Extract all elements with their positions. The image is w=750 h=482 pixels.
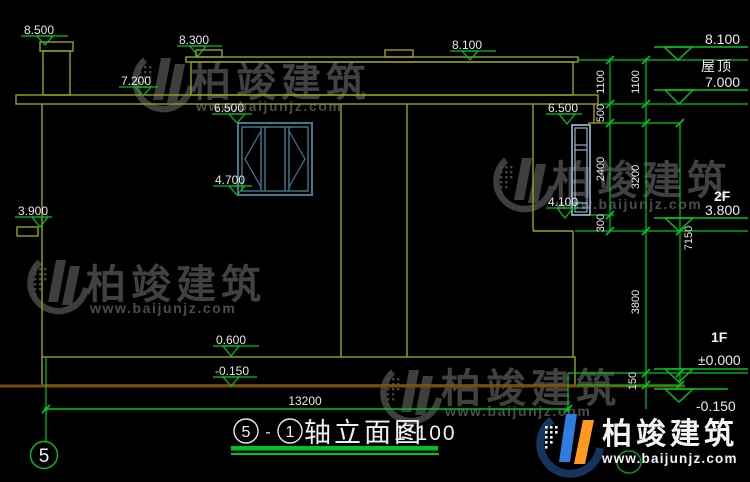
title-axis-end: 1 (286, 424, 295, 441)
right-dimension-system: 1100 500 2400 300 1100 3200 3800 150 715… (568, 31, 748, 414)
casement-swing-right-icon (289, 131, 305, 187)
title-separator: - (265, 424, 270, 441)
marker-neg0150-plinth: -0.150 (213, 364, 257, 386)
marker-4100-label: 4.100 (548, 195, 578, 209)
elevation-triangle-icon (665, 369, 693, 382)
logo-orange-tower-icon (574, 420, 594, 464)
marker-3900: 3.900 (15, 204, 52, 227)
drawing-canvas: 柏竣建筑 www.baijunjz.com 柏竣建筑 www.baijunjz.… (0, 0, 750, 482)
dim-7150: 7150 (683, 226, 695, 250)
dim-1100-b: 1100 (630, 70, 642, 94)
dim-3800: 3800 (630, 290, 642, 314)
watermark-right: 柏竣建筑 www.baijunjz.com (496, 158, 732, 212)
right-margin-markers: 8.100 屋顶 7.000 2F 3.800 1F ±0.000 -0.150 (654, 31, 748, 414)
roof-vent-center (385, 50, 413, 57)
brand-logo-icon (540, 414, 600, 474)
brand-logo: 柏竣建筑 www.baijunjz.com (540, 414, 738, 474)
right-marker-zero-label: ±0.000 (698, 352, 741, 368)
dim-2400: 2400 (595, 157, 607, 181)
elevation-triangle-icon (229, 114, 245, 123)
axis-bubble-label: 5 (39, 446, 50, 467)
brand-logo-url: www.baijunjz.com (601, 451, 738, 466)
right-marker-8100-label: 8.100 (705, 31, 740, 47)
watermark-bottom: 柏竣建筑 www.baijunjz.com (383, 367, 621, 421)
dim-13200: 13200 (288, 394, 322, 408)
elevation-triangle-icon (664, 47, 692, 60)
elevation-triangle-icon (462, 51, 478, 60)
dim-300: 300 (595, 214, 607, 232)
marker-8100-top-label: 8.100 (452, 38, 482, 52)
logo-blue-tower-icon (559, 414, 577, 462)
marker-6500-left-label: 6.500 (214, 101, 244, 115)
watermark-top-center: 柏竣建筑 www.baijunjz.com (135, 58, 371, 114)
chimney-cap (40, 42, 73, 51)
watermark-url-text: www.baijunjz.com (89, 300, 236, 316)
main-window (238, 123, 312, 195)
chimney-body (43, 51, 70, 95)
drawing-title: 5 - 1 轴立面图 1:100 (231, 418, 457, 455)
cad-elevation-drawing: 柏竣建筑 www.baijunjz.com 柏竣建筑 www.baijunjz.… (0, 0, 750, 482)
marker-8300: 8.300 (177, 33, 222, 56)
dim-3200: 3200 (630, 165, 642, 189)
title-scale: 1:100 (394, 422, 457, 445)
elevation-triangle-icon (665, 389, 693, 402)
marker-8500-label: 8.500 (24, 23, 54, 37)
marker-6500-right-label: 6.500 (548, 101, 578, 115)
elevation-triangle-icon (32, 217, 48, 227)
floor1-label: 1F (711, 329, 728, 345)
right-marker-neg0150-label: -0.150 (696, 398, 736, 414)
right-marker-7000-label: 7.000 (705, 74, 740, 90)
title-axis-start: 5 (242, 424, 251, 441)
title-underline-thin (231, 453, 439, 455)
dim-500: 500 (595, 104, 607, 122)
marker-0600-label: 0.600 (216, 333, 246, 347)
casement-swing-left-icon (245, 131, 261, 187)
brand-logo-name: 柏竣建筑 (602, 417, 738, 451)
marker-7200-label: 7.200 (121, 74, 151, 88)
elevation-triangle-icon (190, 46, 206, 56)
dim-1100-a: 1100 (595, 70, 607, 94)
elevation-triangle-icon (559, 114, 575, 124)
marker-0600: 0.600 (213, 333, 259, 356)
roof-label: 屋顶 (701, 58, 733, 74)
watermark-left: 柏竣建筑 www.baijunjz.com (30, 260, 266, 316)
elevation-triangle-icon (665, 90, 693, 104)
marker-neg0150-label: -0.150 (215, 364, 249, 378)
dimension-lines (610, 58, 680, 409)
dim-150: 150 (627, 372, 639, 390)
marker-3900-label: 3.900 (18, 204, 48, 218)
marker-4700-label: 4.700 (215, 173, 245, 187)
title-underline-thick (231, 446, 438, 451)
marker-6500-right: 6.500 (546, 101, 582, 124)
right-marker-3800-label: 3.800 (705, 202, 740, 218)
left-canopy-slab (17, 227, 38, 236)
marker-8300-label: 8.300 (179, 33, 209, 47)
dimension-ticks (606, 56, 684, 389)
elevation-triangle-icon (223, 346, 239, 356)
